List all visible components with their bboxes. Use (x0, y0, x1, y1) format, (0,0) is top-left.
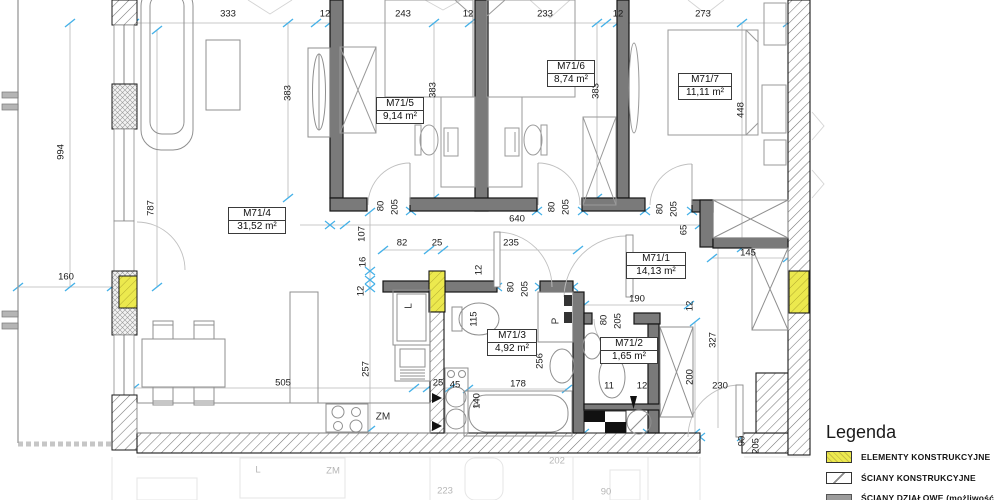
dining-table (142, 339, 225, 387)
ghost-label: 90 (601, 487, 612, 498)
room-id: M71/4 (229, 208, 285, 221)
room-id: M71/7 (679, 74, 731, 87)
diagonal-hatch-swatch (826, 472, 852, 484)
dim-label: 257 (361, 361, 372, 377)
dim-label: 205 (520, 281, 531, 297)
dim-label: 160 (58, 272, 74, 283)
dim-label: 145 (740, 248, 756, 259)
dim-label: 80 (599, 315, 610, 326)
balcony (2, 0, 112, 444)
dim-label: 205 (751, 438, 762, 454)
room-label-m71-7: M71/7 11,11 m² (678, 73, 732, 100)
dim-label: 12 (637, 381, 648, 392)
room-area: 11,11 m² (679, 87, 731, 99)
room-id: M71/6 (548, 61, 594, 74)
chair (153, 387, 173, 405)
legend-title: Legenda (826, 422, 994, 443)
appliance-label: ZM (376, 412, 390, 423)
room-id: M71/5 (377, 98, 423, 111)
room-label-m71-3: M71/3 4,92 m² (487, 329, 537, 356)
dim-label: 178 (510, 379, 526, 390)
dim-label: 190 (629, 294, 645, 305)
ghost-label: L (255, 465, 260, 476)
dim-label: 233 (537, 9, 553, 20)
dim-label: 12 (474, 265, 485, 276)
nightstand (764, 3, 786, 45)
dim-label: 65 (679, 225, 690, 236)
dim-label: 16 (358, 257, 369, 268)
fridge (393, 290, 430, 345)
dim-label: 333 (220, 9, 236, 20)
wc-washbasin (583, 333, 601, 359)
room-area: 14,13 m² (627, 266, 685, 278)
dim-label: 200 (685, 369, 696, 385)
flat-gray-swatch (826, 494, 852, 500)
dim-label: 12 (463, 9, 474, 20)
dim-label: 12 (320, 9, 331, 20)
ghost-label: 223 (437, 486, 453, 497)
dim-label: 230 (712, 381, 728, 392)
dim-label: 383 (428, 82, 439, 98)
dim-label: 205 (613, 313, 624, 329)
room-label-m71-2: M71/2 1,65 m² (600, 337, 658, 364)
legend-item-structural-walls: ŚCIANY KONSTRUKCYJNE (826, 472, 994, 484)
dim-label: 12 (613, 9, 624, 20)
ghost-label: 202 (549, 456, 565, 467)
mirror (629, 43, 639, 133)
appliance-label: L (404, 303, 415, 309)
corner-sofa (141, 0, 193, 150)
legend-item-structural-elements: ELEMENTY KONSTRUKCYJNE (826, 451, 994, 463)
structural-pier-kitchen (429, 271, 445, 433)
dim-label: 107 (357, 226, 368, 242)
room-id: M71/3 (488, 330, 536, 343)
dim-label: 115 (469, 311, 480, 326)
room-area: 4,92 m² (488, 343, 536, 355)
dim-label: 80 (547, 202, 558, 213)
dim-label: 235 (503, 238, 519, 249)
ghost-label: ZM (326, 466, 340, 477)
dim-label: 12 (685, 301, 696, 312)
lower-floor-ghost (112, 457, 810, 500)
yellow-hatch-swatch (826, 451, 852, 463)
dim-label: 12 (356, 286, 367, 297)
chair (194, 387, 214, 405)
valve (564, 295, 572, 306)
coffee-table (206, 40, 240, 110)
dim-label: 327 (708, 332, 719, 348)
legend: Legenda ELEMENTY KONSTRUKCYJNE ŚCIANY KO… (826, 422, 994, 500)
floor-plan-canvas: M71/4 31,52 m² M71/5 9,14 m² M71/6 8,74 … (0, 0, 1000, 500)
dim-label: 45 (450, 380, 461, 391)
appliance-label: P (551, 318, 562, 325)
bathroom-fixtures (432, 292, 574, 436)
room-area: 9,14 m² (377, 111, 423, 123)
dim-label: 640 (509, 214, 525, 225)
dim-label: 448 (736, 102, 747, 118)
room-id: M71/2 (601, 338, 657, 351)
dim-label: 11 (604, 381, 614, 392)
dim-label: 383 (283, 85, 294, 101)
legend-item-label: ŚCIANY KONSTRUKCYJNE (861, 473, 976, 483)
dim-label: 505 (275, 378, 291, 389)
dim-label: 25 (432, 238, 443, 249)
cabinet (764, 140, 786, 165)
dim-label: 205 (669, 201, 680, 217)
dim-label: 25 (433, 378, 444, 389)
room-label-m71-4: M71/4 31,52 m² (228, 207, 286, 234)
kitchen-tall-unit (290, 292, 318, 403)
toilet-tank (452, 307, 462, 331)
chair (524, 125, 542, 155)
room-area: 8,74 m² (548, 74, 594, 86)
exterior-wall-left (112, 0, 137, 450)
dim-label: 82 (397, 238, 408, 249)
chair (420, 125, 438, 155)
valve (564, 312, 572, 323)
room-area: 1,65 m² (601, 351, 657, 363)
legend-item-partition-walls: ŚCIANY DZIAŁOWE (możliwość (826, 493, 994, 500)
dim-label: 787 (146, 200, 157, 216)
dim-label: 140 (472, 393, 483, 409)
dim-label: 994 (56, 144, 67, 160)
dim-label: 80 (376, 201, 387, 212)
legend-item-label: ELEMENTY KONSTRUKCYJNE (861, 452, 990, 462)
nightstand (762, 85, 786, 133)
dim-label: 243 (395, 9, 411, 20)
room-label-m71-6: M71/6 8,74 m² (547, 60, 595, 87)
dim-label: 80 (506, 282, 517, 293)
dim-label: 80 (655, 204, 666, 215)
dim-label: 273 (695, 9, 711, 20)
chair (194, 321, 214, 339)
room-area: 31,52 m² (229, 221, 285, 233)
dim-label: 90 (737, 436, 748, 447)
dining-set (142, 321, 225, 405)
washbasin (550, 349, 574, 383)
dim-label: 205 (561, 199, 572, 215)
room-label-m71-1: M71/1 14,13 m² (626, 252, 686, 279)
room-id: M71/1 (627, 253, 685, 266)
dim-label: 205 (390, 199, 401, 215)
living-room-furniture (141, 0, 330, 150)
chair (153, 321, 173, 339)
legend-item-label: ŚCIANY DZIAŁOWE (możliwość (861, 493, 994, 500)
room-label-m71-5: M71/5 9,14 m² (376, 97, 424, 124)
